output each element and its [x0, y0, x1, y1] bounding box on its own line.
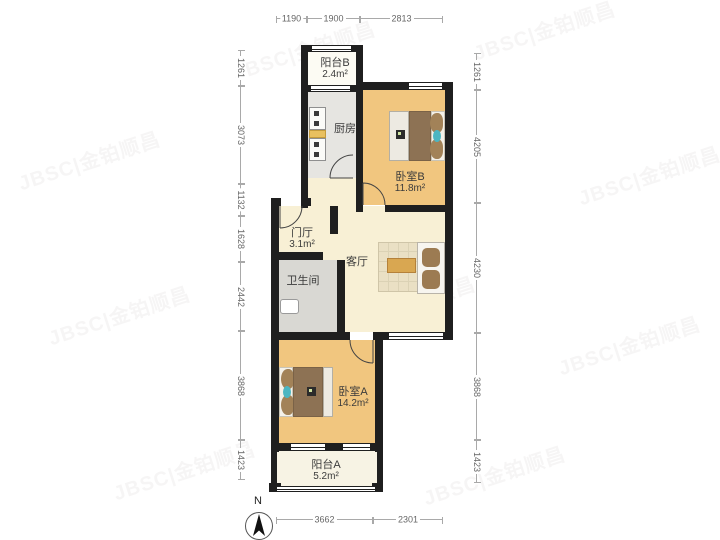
wall [445, 82, 453, 340]
tv-icon [396, 130, 405, 139]
wall [375, 332, 383, 452]
watermark-text: JBSC|金铂顺昌 [574, 138, 720, 211]
dimension-left-1: 1261 [240, 50, 241, 86]
wall [301, 198, 311, 206]
room-label-kitchen: 厨房 [334, 123, 356, 135]
north-label: N [254, 495, 262, 507]
bed-accent [433, 130, 441, 142]
wall [301, 45, 308, 208]
floor-plan-image: JBSC|金铂顺昌 JBSC|金铂顺昌 JBSC|金铂顺昌 JBSC|金铂顺昌 … [0, 0, 720, 540]
coffee-table [387, 258, 416, 273]
dimension-left-7: 1423 [240, 440, 241, 480]
room-label-bathroom: 卫生间 [287, 275, 320, 287]
floor-bathroom [279, 260, 337, 332]
dimension-right-5: 1423 [476, 440, 477, 483]
window [312, 45, 351, 52]
watermark-text: JBSC|金铂顺昌 [419, 438, 569, 511]
watermark-text: JBSC|金铂顺昌 [469, 0, 619, 66]
watermark-text: JBSC|金铂顺昌 [14, 123, 164, 196]
dimension-left-4: 1628 [240, 216, 241, 262]
room-label-foyer: 门厅 3.1m² [289, 227, 315, 250]
balcony-railing [277, 486, 375, 492]
dimension-left-3: 1132 [240, 184, 241, 216]
window [311, 85, 350, 92]
bed-blanket [409, 111, 431, 161]
pillow [430, 139, 443, 159]
wall [330, 206, 338, 234]
kitchen-stove [309, 138, 326, 161]
wall [356, 92, 363, 212]
watermark-text: JBSC|金铂顺昌 [44, 278, 194, 351]
dimension-right-2: 4205 [476, 90, 477, 203]
dimension-right-3: 4230 [476, 203, 477, 333]
room-label-living-room: 客厅 [346, 256, 368, 268]
dimension-right-1: 1261 [476, 53, 477, 90]
washbasin [280, 299, 299, 314]
window [343, 443, 370, 451]
wall [271, 252, 323, 260]
compass [245, 512, 273, 540]
wall [385, 205, 445, 212]
wall [271, 198, 279, 452]
dimension-bottom-1: 3662 [276, 519, 373, 520]
wall [271, 332, 350, 340]
dimension-top-2: 1900 [307, 18, 360, 19]
wall [337, 260, 345, 340]
dimension-left-6: 3868 [240, 331, 241, 440]
dimension-top-1: 1190 [276, 18, 307, 19]
dimension-bottom-2: 2301 [373, 519, 443, 520]
window [291, 443, 325, 451]
bed-accent [283, 386, 291, 398]
dimension-left-2: 3073 [240, 86, 241, 184]
bed-bench [323, 367, 333, 417]
kitchen-shelf [309, 130, 326, 138]
dimension-top-3: 2813 [360, 18, 443, 19]
window [409, 82, 442, 90]
watermark-text: JBSC|金铂顺昌 [554, 308, 704, 381]
window [389, 332, 443, 340]
room-label-balcony-a: 阳台A 5.2m² [311, 459, 340, 482]
dimension-left-5: 2442 [240, 262, 241, 331]
dimension-right-4: 3868 [476, 333, 477, 440]
sofa [417, 242, 445, 294]
room-label-bedroom-a: 卧室A 14.2m² [337, 386, 368, 409]
tv-icon [307, 387, 316, 396]
kitchen-sink-counter [309, 107, 326, 130]
room-label-balcony-b: 阳台B 2.4m² [320, 57, 349, 80]
room-label-bedroom-b: 卧室B 11.8m² [395, 171, 425, 194]
north-arrow-icon [246, 513, 272, 539]
